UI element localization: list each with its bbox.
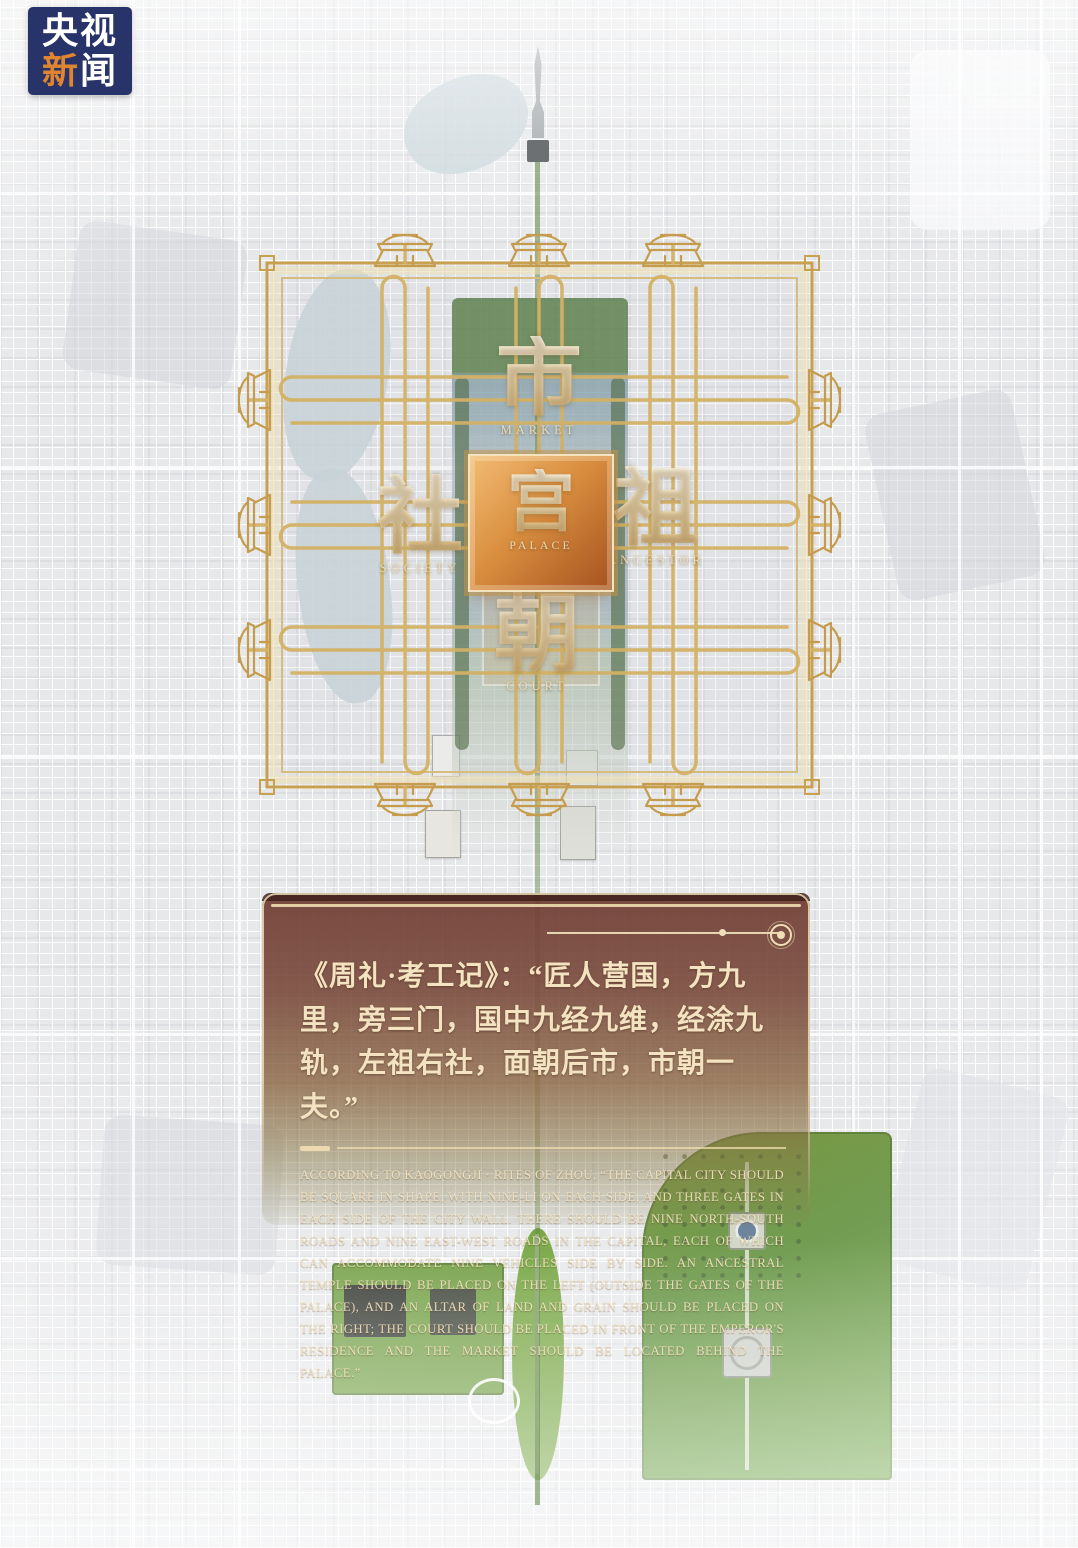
cctv-news-logo: 央视 新闻 (28, 7, 132, 95)
logo-line2: 新闻 (42, 52, 118, 91)
panel-top-border (271, 904, 801, 907)
decor-dot (719, 929, 726, 936)
logo-char-xin: 新 (42, 50, 80, 91)
label-market: 市 MARKET (454, 336, 624, 438)
decor-ring-icon (770, 924, 792, 946)
logo-line1: 央视 (42, 12, 118, 51)
palace-character: 宫 (470, 469, 612, 536)
market-character: 市 (454, 336, 624, 420)
panel-divider (300, 1146, 786, 1151)
decor-line (547, 932, 782, 934)
quote-chinese: 《周礼·考工记》：“匠人营国，方九里，旁三门，国中九经九维，经涂九轨，左祖右社，… (300, 955, 786, 1130)
quote-panel: 《周礼·考工记》：“匠人营国，方九里，旁三门，国中九经九维，经涂九轨，左祖右社，… (262, 893, 810, 1225)
divider-line (337, 1147, 786, 1149)
label-court: 朝 COURT (452, 592, 622, 694)
divider-dash (300, 1146, 330, 1151)
quote-english: ACCORDING TO KAOGONGJI · RITES OF ZHOU, … (300, 1164, 784, 1384)
panel-decor-line (547, 923, 792, 944)
court-character: 朝 (452, 592, 622, 676)
palace-caption: PALACE (470, 538, 612, 553)
poster: 市 MARKET 社 SOCIETY 祖 ANCESTOR 朝 COURT 宫 … (0, 0, 1078, 1548)
label-palace: 宫 PALACE (470, 456, 612, 590)
logo-char-wen: 闻 (80, 50, 118, 91)
market-caption: MARKET (454, 423, 624, 438)
court-caption: COURT (452, 679, 622, 694)
